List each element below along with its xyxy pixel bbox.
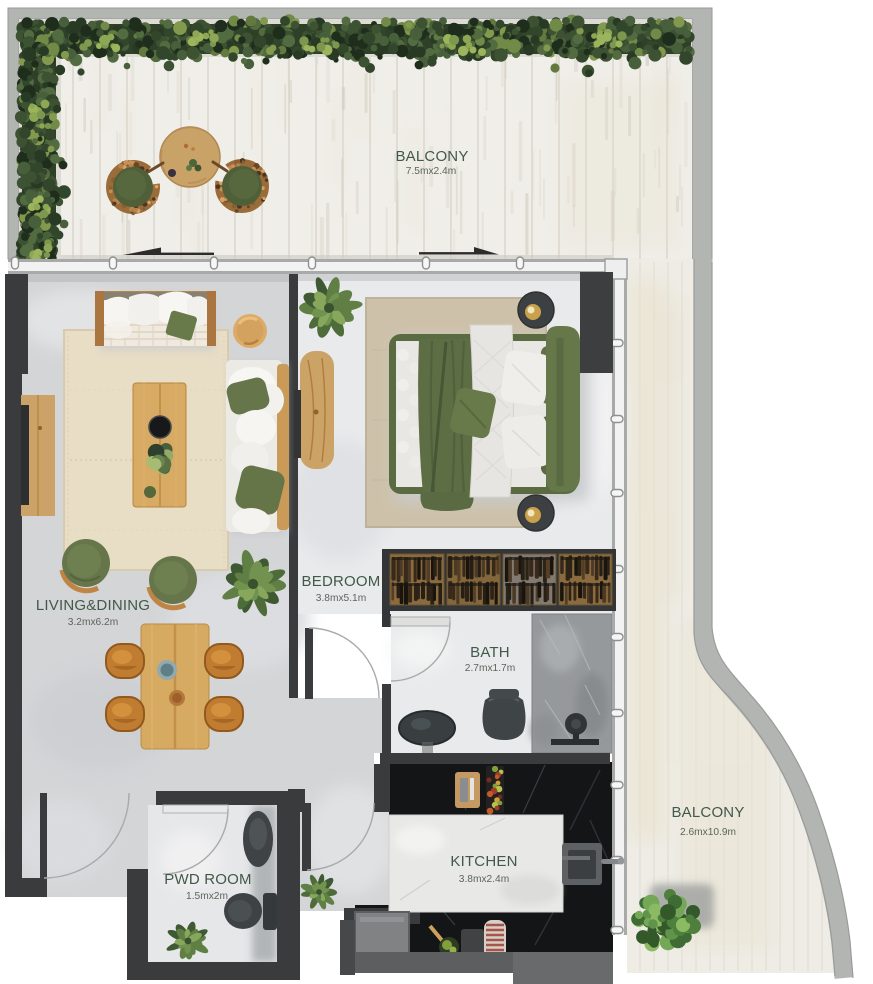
svg-text:7.5mx2.4m: 7.5mx2.4m <box>406 166 456 177</box>
svg-text:BATH: BATH <box>470 644 510 661</box>
svg-text:2.6mx10.9m: 2.6mx10.9m <box>680 827 736 838</box>
svg-text:3.2mx6.2m: 3.2mx6.2m <box>68 617 118 628</box>
svg-text:BALCONY: BALCONY <box>671 804 744 821</box>
svg-text:LIVING&DINING: LIVING&DINING <box>36 597 150 614</box>
svg-text:KITCHEN: KITCHEN <box>450 853 517 870</box>
svg-text:3.8mx2.4m: 3.8mx2.4m <box>459 874 509 885</box>
svg-text:BALCONY: BALCONY <box>395 148 468 165</box>
svg-text:PWD ROOM: PWD ROOM <box>164 871 251 888</box>
svg-text:3.8mx5.1m: 3.8mx5.1m <box>316 593 366 604</box>
svg-text:2.7mx1.7m: 2.7mx1.7m <box>465 663 515 674</box>
svg-text:1.5mx2m: 1.5mx2m <box>186 891 228 902</box>
svg-text:BEDROOM: BEDROOM <box>302 573 381 590</box>
